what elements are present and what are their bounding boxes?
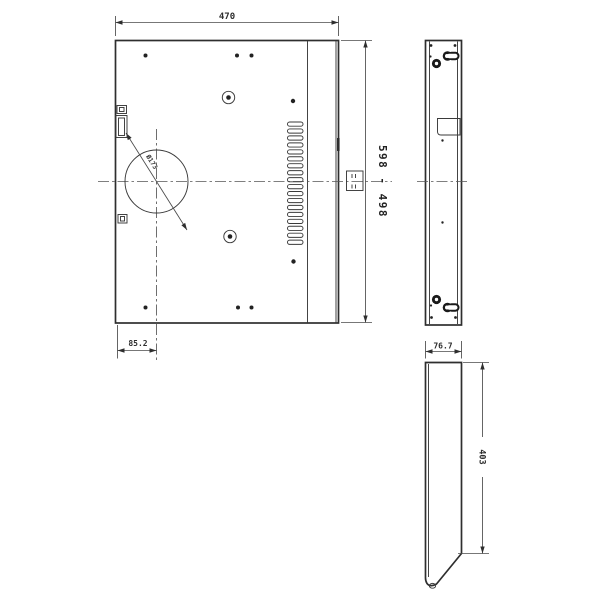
technical-drawing: Ø173 <box>0 0 600 600</box>
drawing-canvas: Ø173 <box>0 0 600 600</box>
grommet-inner <box>435 62 438 65</box>
left-edge-clips <box>116 106 127 224</box>
vent-slot <box>288 219 304 223</box>
clip <box>117 106 127 114</box>
hole <box>144 54 148 58</box>
clip-inner <box>121 217 125 222</box>
profile-width-dimension: 76.7 <box>426 341 462 359</box>
width-dimension: 470 <box>116 12 339 36</box>
hole <box>441 221 443 223</box>
profile-view: 76.7 403 <box>426 341 490 588</box>
keyhole-inner <box>447 305 458 309</box>
vent-slot <box>288 240 304 244</box>
width-dim-label: 470 <box>219 12 235 22</box>
keyhole-slot-bottom <box>443 303 460 313</box>
offset-dim-label: 85.2 <box>128 339 147 348</box>
terminal-block <box>347 171 364 191</box>
vent-slot <box>288 192 304 196</box>
ringed-hole <box>226 95 231 100</box>
hole <box>235 54 239 58</box>
side-outline <box>426 41 462 326</box>
clip <box>118 215 127 224</box>
keyhole-slot-top <box>443 51 460 61</box>
hole <box>430 44 433 47</box>
hole <box>250 306 254 310</box>
arrowhead <box>480 547 484 554</box>
vent-slot <box>288 150 304 154</box>
vent-slot <box>288 226 304 230</box>
hole <box>291 259 295 263</box>
grommet-inner <box>435 298 438 301</box>
hole <box>454 44 457 47</box>
clip-inner <box>119 118 125 136</box>
vent-slot <box>288 233 304 237</box>
offset-dimension: 85.2 <box>118 325 157 359</box>
arrowhead <box>181 223 187 230</box>
hole <box>144 306 148 310</box>
clip-inner <box>120 108 125 112</box>
front-plate-outline <box>116 41 339 324</box>
arrowhead <box>426 349 433 353</box>
profile-height-label: 403 <box>477 449 487 464</box>
vent-slot <box>288 198 304 202</box>
hole <box>454 316 457 319</box>
arrowhead <box>332 20 339 24</box>
vent-slot <box>288 212 304 216</box>
vent-slot <box>288 143 304 147</box>
vent-slot <box>288 171 304 175</box>
vent-slot <box>288 205 304 209</box>
vent-slot <box>288 157 304 161</box>
arrowhead <box>116 20 123 24</box>
arrowhead <box>150 348 157 352</box>
clip <box>116 116 127 138</box>
terminal-block-outline <box>347 171 364 191</box>
arrowhead <box>480 363 484 370</box>
vent-slot <box>288 164 304 168</box>
profile-outline <box>426 363 462 586</box>
arrowhead <box>363 316 367 323</box>
hole <box>430 316 433 319</box>
profile-height-dimension: 403 <box>458 363 489 554</box>
hole <box>441 139 443 141</box>
arrowhead <box>363 41 367 48</box>
ringed-hole <box>228 234 233 239</box>
hole <box>429 55 431 57</box>
hole <box>250 54 254 58</box>
front-view: Ø173 <box>98 12 392 361</box>
vent-slot <box>288 185 304 189</box>
arrowhead <box>118 348 125 352</box>
grommet-bottom <box>432 295 441 304</box>
hole <box>291 99 295 103</box>
grommet-top <box>432 59 441 68</box>
vent-slots <box>288 122 304 244</box>
vent-slot <box>288 136 304 140</box>
hole <box>236 306 240 310</box>
keyhole-inner <box>447 54 458 58</box>
side-cutout <box>438 119 461 136</box>
height-dim-label: 598 - 498 <box>376 145 389 218</box>
side-view <box>417 41 470 326</box>
hole-diameter-label: Ø173 <box>144 152 160 170</box>
vent-slot <box>288 122 304 126</box>
vent-slot <box>288 129 304 133</box>
arrowhead <box>455 349 462 353</box>
hole <box>430 304 432 306</box>
profile-width-label: 76.7 <box>433 342 452 351</box>
